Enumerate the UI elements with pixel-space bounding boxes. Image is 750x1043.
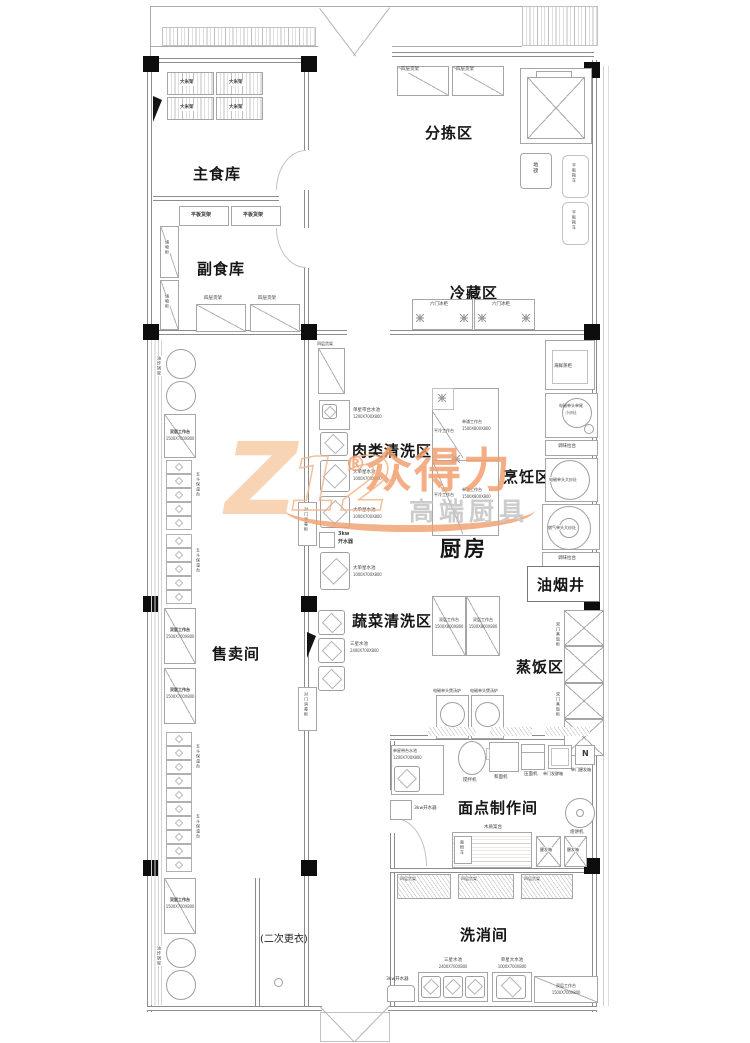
- wall-sales-kitchen: [304, 335, 309, 1006]
- flat-trolley-label: 平板拖车: [572, 163, 577, 183]
- wall-shelf-strip: [490, 727, 532, 736]
- four-layer-shelf-label: 四层货架: [258, 296, 276, 302]
- bain-marie-label: 五斗保温台: [196, 548, 201, 573]
- water-boiler-label: 开水器: [338, 539, 353, 545]
- wall-shelf-strip: [428, 727, 476, 736]
- sink-with-counter-name: 单星带台水池: [393, 748, 417, 753]
- bain-marie-well: [166, 788, 192, 802]
- door-arc: [276, 228, 306, 268]
- flat-trolley-label: 平板拖车: [572, 210, 577, 230]
- room-label-side-food-storage: 副食库: [197, 258, 245, 279]
- room-label-washing-room: 洗消间: [460, 924, 508, 945]
- bain-marie-well: [166, 746, 192, 760]
- double-worktable2-name: 双层工作台: [439, 617, 459, 622]
- wall-washing-top: [390, 868, 597, 873]
- wood-table-label: 木质案台: [484, 825, 502, 831]
- fryer-rack-label: 油炸锅架: [157, 946, 162, 966]
- bain-marie-well: [166, 760, 192, 774]
- dough-mixer-arm: [486, 748, 490, 760]
- room-label-vegetable-washing: 蔬菜清洗区: [352, 610, 432, 631]
- big-single-sink: [320, 496, 350, 528]
- four-layer-shelf-label: 四层货架: [204, 296, 222, 302]
- single-pass-worktable-label: 单通工作台1500X800X800: [462, 486, 491, 499]
- fryer-rack-pot: [166, 970, 196, 1000]
- wall-storage-vertical: [304, 63, 309, 150]
- bain-marie-well: [166, 548, 192, 562]
- dough-press-roller: [521, 752, 545, 753]
- double-worktable-dims: 1500X700X800: [164, 436, 196, 441]
- spice-counter-label: 调味拉台: [558, 556, 576, 562]
- double-worktable2-label: 双层工作台1500X800X800: [466, 616, 500, 629]
- room-label-sales-room: 售卖间: [212, 643, 260, 664]
- water-boiler-label: 3kw开水器: [386, 977, 409, 983]
- soup-stove-label: 电磁单头煲汤炉: [433, 688, 461, 693]
- seafood-steamer-label: 海鲜蒸柜: [554, 364, 572, 370]
- sink-with-counter-dims: 1200X700X800: [353, 414, 382, 419]
- big-single-sink-label: 大单星水池1000X700X800: [353, 468, 382, 481]
- flat-shelf-label: 平板货架: [191, 212, 211, 218]
- wall-storage-vertical: [304, 268, 309, 332]
- wall-shelf-strip: [545, 727, 590, 736]
- stairwell: [522, 6, 598, 46]
- bain-marie-well: [166, 732, 192, 746]
- double-worktable-label: 双层工作台1500X700X800: [164, 896, 196, 909]
- big-single-sink2-dims: 1000X700X800: [490, 964, 534, 969]
- snowflake-icon: [438, 394, 446, 402]
- spice-counter-label: 调味拉台: [558, 444, 576, 450]
- elevator-slot: [536, 71, 572, 78]
- double-worktable-label: 双层工作台1500X700X800: [164, 626, 196, 639]
- four-layer-shelf: [318, 348, 345, 394]
- big-single-sink2-label: 单星大水池1000X700X800: [490, 956, 534, 969]
- bain-marie-well: [166, 534, 192, 548]
- big-single-sink-label: 大单星水池1000X700X800: [353, 506, 382, 519]
- floor-plan: Z 12 ® 众得力 高端厨具 主食库 大米架 大米架 大米架 大米架 平板货架…: [0, 0, 750, 1043]
- ferment-box-label: 单门发酵箱: [543, 771, 563, 776]
- bain-marie-well: [166, 830, 192, 844]
- small-wok-stove-label: 电磁单头单尾小炒灶: [546, 402, 596, 415]
- triple-sink-bowl: [318, 638, 345, 663]
- water-boiler-kw: 3kw: [338, 531, 349, 537]
- top-hatch-band: [162, 27, 316, 46]
- four-layer-shelf-label: 四层货架: [524, 876, 540, 881]
- triple-sink-dims: 2400X700X800: [420, 964, 486, 969]
- freight-elevator-cab: [527, 77, 585, 139]
- entry-door-leaf: [319, 8, 356, 57]
- big-single-sink: [320, 552, 350, 590]
- bain-marie-well: [166, 590, 192, 604]
- bain-marie-well: [166, 816, 192, 830]
- wall-bottom: [147, 1006, 322, 1011]
- pass-disinfect-cabinet-label: 对门消毒柜: [304, 507, 309, 532]
- double-worktable2-name: 双层工作台: [473, 617, 493, 622]
- island-diagonal: [433, 412, 463, 458]
- rice-rack-label: 大米架: [228, 105, 244, 111]
- room-label-rice-steaming: 蒸饭区: [516, 656, 564, 677]
- big-single-sink2-name: 单星大水池: [501, 958, 524, 963]
- snowflake-icon: [452, 455, 460, 463]
- snowflake-icon: [478, 314, 486, 322]
- room-label-sorting-area: 分拣区: [425, 122, 473, 143]
- triple-sink-bowl: [465, 976, 485, 998]
- double-worktable2-dims: 1500X800X800: [432, 624, 466, 629]
- compass-letter: N: [582, 749, 589, 759]
- wall-wedge: [153, 96, 162, 122]
- big-single-sink: [320, 432, 348, 456]
- bain-marie-well: [166, 516, 192, 530]
- wall-middle: [147, 330, 347, 335]
- four-layer-shelf-label: 四层货架: [401, 67, 419, 73]
- fryer-rack-label: 油炸锅架: [157, 356, 162, 376]
- four-layer-shelf-label: 四层货架: [317, 341, 333, 346]
- triple-sink-bowl: [318, 666, 345, 691]
- pancake-machine-inner: [576, 809, 584, 817]
- flat-shelf-label: 平板货架: [243, 212, 263, 218]
- pass-disinfect-cabinet-label: 对门消毒柜: [304, 692, 309, 717]
- bain-marie-well: [166, 576, 192, 590]
- water-boiler: [387, 985, 415, 1002]
- column: [301, 860, 317, 876]
- triple-sink-dims: 2400X700X800: [350, 648, 379, 653]
- proof-box-label: 醒发箱: [567, 847, 579, 852]
- water-boiler: [319, 532, 335, 548]
- storage-cabinet-label: 储物柜: [165, 240, 170, 255]
- bain-marie-well: [166, 460, 192, 474]
- triple-sink-bowl: [318, 610, 345, 635]
- flour-cart-label: 面粉车: [460, 840, 465, 855]
- double-worktable-dims: 1500X700X800: [534, 990, 598, 995]
- four-layer-shelf-label: 四层货架: [456, 67, 474, 73]
- six-door-fridge-label: 六门冰柜: [430, 302, 448, 308]
- triple-sink-bowl: [421, 976, 441, 998]
- bain-marie-well: [166, 858, 192, 872]
- small-wok-line2: 小炒灶: [546, 410, 596, 415]
- ferment-box-inner: [551, 748, 569, 766]
- double-worktable-name: 双层工作台: [556, 983, 576, 988]
- double-worktable-dims: 1500X700X800: [164, 904, 196, 909]
- room-label-smoke-shaft: 油烟井: [537, 574, 585, 595]
- snowflake-icon: [522, 314, 530, 322]
- sink-bowl: [322, 404, 337, 419]
- island-divider: [432, 460, 499, 461]
- rice-steam-cabinet-label: 双门蒸饭柜: [556, 692, 561, 717]
- column: [143, 324, 159, 340]
- proof-box-label: 醒发箱: [540, 847, 552, 852]
- dough-mixer: [489, 742, 519, 772]
- double-worktable-dims: 1500X700X800: [164, 694, 196, 699]
- wall-wedge: [307, 632, 316, 658]
- fryer-rack-pot: [166, 381, 196, 411]
- column: [584, 324, 600, 340]
- corridor-line: [392, 46, 522, 47]
- soup-stove-label: 电磁单头煲汤炉: [470, 688, 498, 693]
- rice-steam-cabinet: [564, 683, 604, 719]
- water-boiler: [390, 800, 412, 820]
- single-pass-worktable-label: 单通工作台1500X800X800: [462, 418, 491, 431]
- big-single-sink-name: 大单星水池: [353, 470, 376, 475]
- big-single-sink-dims: 1000X700X800: [353, 572, 382, 577]
- bain-marie-well: [166, 844, 192, 858]
- triple-sink-name: 三星水池: [444, 958, 462, 963]
- room-label-second-changing: (二次更衣): [260, 930, 308, 945]
- double-worktable-name: 双层工作台: [170, 687, 190, 692]
- single-pass-worktable-name: 单通工作台: [462, 487, 482, 492]
- wall-storage-vertical: [304, 190, 309, 228]
- single-pass-worktable-name: 单通工作台: [462, 419, 482, 424]
- triple-sink-label: 三星水池2400X700X800: [350, 640, 379, 653]
- double-worktable-name: 双层工作台: [170, 627, 190, 632]
- double-worktable-label: 双层工作台1500X700X800: [534, 982, 598, 995]
- snowflake-icon: [416, 314, 424, 322]
- corridor-line: [603, 66, 604, 1006]
- storage-cabinet-label: 储物柜: [165, 294, 170, 309]
- room-label-main-food-storage: 主食库: [193, 163, 241, 184]
- island-diagonal: [433, 462, 463, 534]
- double-worktable-label: 双层工作台1500X700X800: [164, 686, 196, 699]
- double-worktable-label: 双层工作台1500X700X800: [164, 428, 196, 441]
- double-worktable2-label: 双层工作台1500X800X800: [432, 616, 466, 629]
- column: [301, 324, 317, 340]
- small-wok-line1: 电磁单头单尾: [559, 403, 583, 408]
- gas-big-wok-label: 燃气单头大炒灶: [548, 525, 576, 530]
- fryer-rack-pot: [166, 938, 196, 968]
- rice-steam-cabinet-label: 双门蒸饭柜: [556, 622, 561, 647]
- mixer: [458, 741, 486, 775]
- bain-marie-well: [166, 562, 192, 576]
- bain-marie-well: [166, 774, 192, 788]
- triple-sink-name: 三星水池: [350, 642, 368, 647]
- corridor-line: [150, 6, 151, 58]
- mixer-label: 搅拌机: [463, 778, 477, 784]
- dough-press-label: 压面机: [524, 772, 538, 778]
- cold-worktable-label: 平冷工作台: [434, 428, 454, 433]
- room-label-meat-washing: 肉类清洗区: [352, 440, 432, 461]
- corridor-line: [608, 66, 609, 1006]
- sink-with-counter-label: 单星带台水池1200X700X800: [353, 406, 382, 419]
- wok-small-burner: [584, 424, 594, 434]
- double-worktable-name: 双层工作台: [170, 897, 190, 902]
- bain-marie-well: [166, 802, 192, 816]
- serving-window-band: [151, 340, 163, 1005]
- induction-big-wok-label: 电磁单头大炒灶: [549, 477, 577, 482]
- cold-worktable-label: 平冷工作台: [434, 492, 454, 497]
- rice-steam-cabinet: [564, 610, 604, 646]
- wall-storage-divider: [153, 196, 279, 201]
- four-layer-shelf-label: 四层货架: [461, 876, 477, 881]
- four-layer-shelf-label: 四层货架: [400, 876, 416, 881]
- big-single-sink-name: 大单星水池: [353, 566, 376, 571]
- big-single-sink-label: 大单星水池1000X700X800: [353, 564, 382, 577]
- fryer-rack-pot: [166, 349, 196, 379]
- bain-marie-well: [166, 502, 192, 516]
- double-worktable-dims: 1500X700X800: [164, 634, 196, 639]
- bain-marie-label: 五斗保温台: [196, 744, 201, 769]
- rice-rack-label: 大米架: [179, 80, 195, 86]
- sink-bowl: [394, 766, 420, 792]
- floor-drain: [274, 978, 283, 987]
- big-single-sink-dims: 1000X700X800: [353, 476, 382, 481]
- sink-with-counter-name: 单星带台水池: [353, 408, 380, 413]
- single-pass-worktable-dims: 1500X800X800: [462, 426, 491, 431]
- rice-rack-label: 大米架: [228, 80, 244, 86]
- double-worktable2-dims: 1500X800X800: [466, 624, 500, 629]
- column: [301, 596, 317, 612]
- wall-bottom: [388, 1006, 597, 1011]
- room-label-cooking-area: 烹饪区: [503, 466, 551, 487]
- water-boiler-label: 3kw开水器: [414, 806, 437, 812]
- door-arc: [276, 150, 306, 190]
- column: [301, 56, 317, 72]
- sink-with-counter-dims: 1200X700X800: [393, 755, 422, 760]
- rice-rack-label: 大米架: [179, 105, 195, 111]
- soup-stove-burner: [475, 702, 500, 727]
- floor-scale-label: 地磅: [532, 162, 538, 174]
- bain-marie-label: 五斗保温台: [196, 472, 201, 497]
- bain-marie-well: [166, 474, 192, 488]
- big-single-sink2-bowl: [496, 975, 526, 999]
- soup-stove-burner: [440, 702, 465, 727]
- dough-mixer-label: 和面机: [494, 775, 508, 781]
- sink-with-counter-label: 单星带台水池1200X700X800: [393, 747, 422, 760]
- four-layer-shelf: [250, 304, 300, 332]
- brand-logo-letter: Z: [225, 430, 298, 530]
- single-pass-worktable-dims: 1500X800X800: [462, 494, 491, 499]
- proof-box-single-label: 单门醒发箱: [571, 767, 591, 772]
- pancake-machine-label: 烙饼机: [570, 830, 584, 836]
- column: [143, 56, 159, 72]
- entry-door-leaf: [353, 7, 390, 56]
- snowflake-icon: [460, 314, 468, 322]
- six-door-fridge-label: 六门冰柜: [492, 302, 510, 308]
- wall-middle: [390, 330, 597, 335]
- bain-marie-well: [166, 488, 192, 502]
- rice-steam-cabinet: [564, 646, 604, 683]
- triple-sink-bowl: [443, 976, 463, 998]
- four-layer-shelf: [196, 304, 246, 332]
- bain-marie-label: 五斗保温台: [196, 814, 201, 839]
- triple-sink-label: 三星水池2400X700X800: [420, 956, 486, 969]
- double-worktable-name: 双层工作台: [170, 429, 190, 434]
- big-single-sink: [320, 460, 350, 492]
- room-label-pastry-room: 面点制作间: [458, 797, 538, 818]
- door-arc: [395, 818, 427, 866]
- dough-press: [521, 744, 545, 770]
- wall-top: [147, 58, 310, 63]
- corridor-line: [150, 46, 318, 47]
- big-single-sink-dims: 1000X700X800: [353, 514, 382, 519]
- room-label-kitchen: 厨房: [440, 533, 488, 563]
- wall-top: [392, 52, 594, 57]
- big-single-sink-name: 大单星水池: [353, 508, 376, 513]
